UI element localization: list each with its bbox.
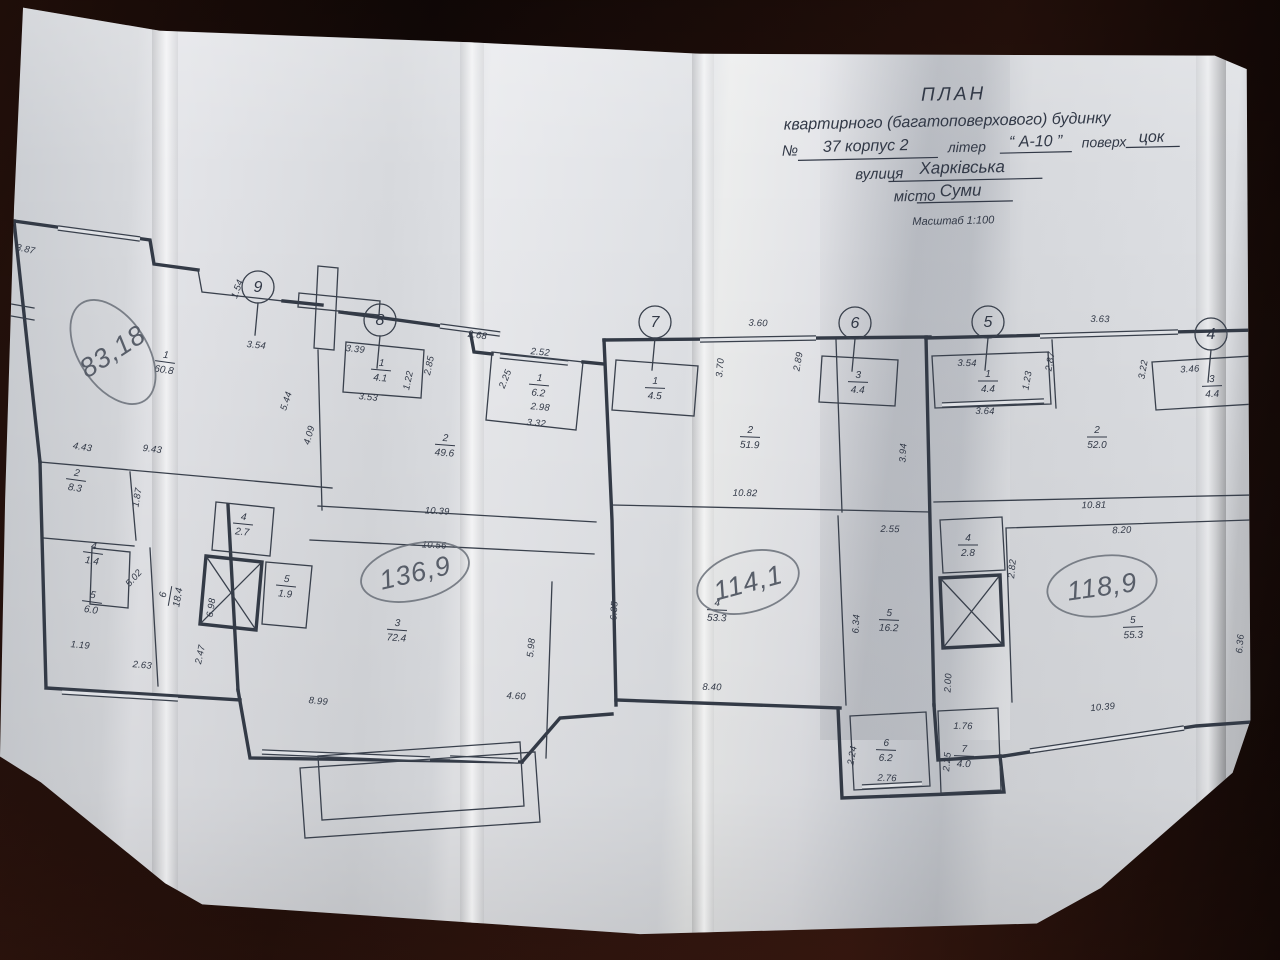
room-number: 5 [283,574,290,586]
room-number: 2 [72,468,80,480]
fraction-line [155,361,175,364]
room-label: 555.3 [1123,615,1144,642]
room-label: 28.3 [64,467,87,496]
pencil-area-value: 118,9 [1065,567,1139,607]
room-area: 72.4 [386,632,407,644]
dimension-label: 6.34 [851,614,863,634]
dimension-label: 4.09 [302,424,318,446]
room-label: 14.1 [370,357,392,385]
dimension-label: 2.76 [876,773,897,785]
axis-circles: 987654 [242,271,1227,382]
room-label: 516.2 [879,608,900,635]
dimension-label: 2.87 [1043,351,1057,373]
dimension-label: 10.81 [1081,500,1106,511]
dimension-label: 2.85 [422,354,437,377]
building-number: 37 корпус 2 [823,137,909,156]
room-number: 2 [441,433,449,444]
room-area: 1.4 [84,555,100,568]
dimension-label: 3.64 [975,406,994,417]
dimension-label: 5.98 [525,637,538,658]
handwritten-area-note: 118,9 [1043,549,1160,624]
room-number: 1 [652,376,658,387]
room-number: 3 [1209,374,1215,385]
fraction-line [740,437,760,438]
room-area: 18.4 [171,587,185,609]
dimension-label: 3.39 [345,343,366,356]
dimension-label: 8.40 [702,682,722,693]
dimension-label: 3.63 [1090,314,1110,325]
dimension-label: 2.68 [466,329,488,343]
axis-number: 4 [1207,326,1216,343]
room-label: 618.4 [156,584,185,608]
room-number: 6 [158,591,170,599]
room-area: 53.3 [707,613,727,625]
room-label: 34.4 [848,370,869,397]
dimension-label: 5.44 [278,390,294,412]
dimension-label: 3.60 [748,318,768,330]
room-number: 5 [89,590,96,602]
room-number: 1 [536,373,543,384]
dimension-label: 3.54 [957,358,976,369]
room-area: 49.6 [434,447,455,459]
dimension-label: 4.43 [72,441,93,455]
room-label: 251.9 [740,425,761,452]
room-number: 1 [985,369,991,380]
axis-tick [852,339,855,371]
no-label: № [782,142,799,159]
room-number: 1 [162,350,169,362]
axis-number: 8 [376,312,385,329]
dimension-label: 3.94 [898,443,910,463]
dimension-label: 1.22 [401,369,416,391]
fraction-line [82,601,102,604]
fraction-line [645,388,665,389]
dimension-label: 3.70 [714,357,727,378]
dimension-label: 3.54 [246,339,266,352]
dimension-label: 3.32 [526,417,547,430]
fraction-line [233,523,253,525]
room-number: 4 [965,533,971,544]
dimension-label: 3.46 [1180,363,1200,375]
room-label: 372.4 [386,617,408,644]
floor-plan-drawing: ПЛАН квартирного (багатоповерхового) буд… [0,0,1280,960]
room-area: 60.8 [153,364,174,378]
fraction-line [1202,386,1222,387]
room-label: 252.0 [1087,425,1107,451]
folded-paper-sheet: ПЛАН квартирного (багатоповерхового) буд… [0,0,1280,960]
fraction-line [387,629,407,630]
dimension-label: 6.98 [205,597,219,618]
axis-number: 6 [851,315,860,332]
room-number: 6 [883,738,889,749]
dimension-label: 6.35 [608,600,620,621]
room-label: 51.9 [275,573,298,601]
fraction-line [529,384,549,386]
dimension-label: 2.89 [791,351,805,373]
room-area: 52.0 [1087,440,1107,451]
fraction-line [1123,627,1143,628]
room-number: 5 [886,608,892,619]
dimension-label: 1.76 [953,721,973,732]
pencil-area-value: 114,1 [710,559,786,606]
fraction-line [876,750,896,751]
axis-number: 9 [254,279,263,296]
city-value: Суми [940,181,983,201]
dimension-label: 10.82 [733,488,758,499]
pencil-area-value: 136,9 [376,550,453,596]
room-area: 16.2 [879,623,899,635]
dimension-label: 2.98 [529,401,551,414]
room-number: 3 [855,370,861,381]
room-label: 14.4 [978,369,998,395]
room-label: 34.4 [1202,374,1223,401]
fraction-line [276,585,296,587]
dimension-label: 2.47 [193,643,208,666]
walls [0,221,1255,838]
dimension-label: 2.24 [845,745,859,767]
room-area: 8.3 [67,482,83,495]
axis-number: 5 [984,314,993,331]
room-number: 4 [90,541,97,553]
dimension-label: 2.63 [131,659,153,672]
dimension-label: 8.20 [1112,525,1132,537]
floor-value: цок [1139,129,1166,147]
dimension-label: 5.02 [124,567,145,589]
room-number: 2 [746,425,753,436]
room-label: 42.8 [958,533,978,559]
dimension-label: 9.43 [142,443,163,456]
plan-subtitle: квартирного (багатоповерхового) будинку [784,110,1112,134]
room-area: 51.9 [740,440,760,452]
dimension-label: 2.25 [497,368,515,391]
room-number: 5 [1130,615,1136,626]
room-area: 4.4 [981,384,995,395]
room-label: 56.0 [80,589,103,618]
fraction-line [83,552,103,555]
fraction-line [848,382,868,383]
dimension-label: 6.36 [1234,633,1247,654]
room-area: 55.3 [1123,630,1143,642]
room-area: 4.5 [648,391,663,402]
floor-label: поверх [1081,133,1127,150]
dimension-label: 2.82 [1006,558,1019,580]
room-number: 2 [1093,425,1100,436]
room-area: 1.9 [278,588,293,600]
photo-of-floor-plan: { "colors":{"ink":"#323947","paper":"#dc… [0,0,1280,960]
axis-tick [255,303,258,335]
fraction-line [879,620,899,621]
pencil-area-value: 83,18 [74,319,151,384]
room-label: 249.6 [434,432,456,459]
title-block: ПЛАН квартирного (багатоповерхового) буд… [780,79,1181,230]
room-label: 66.2 [876,738,897,765]
liter-label: літер [947,138,987,155]
room-area: 4.1 [373,372,388,384]
room-number: 4 [240,512,247,524]
dimension-label: 8.99 [308,695,329,708]
scale-note: Масштаб 1:100 [912,214,995,228]
room-area: 4.4 [1205,389,1220,400]
fraction-line [954,756,974,757]
dimension-label: 3.22 [1136,359,1150,380]
room-label: 16.2 [528,372,550,400]
dimension-label: 1.19 [70,639,91,652]
room-number: 3 [394,618,401,629]
fraction-line [435,444,455,445]
room-label: 42.7 [232,511,255,539]
fraction-line [371,369,391,371]
room-area: 6.0 [83,604,99,617]
dimension-label: 2.52 [529,346,551,359]
room-number: 1 [378,358,385,369]
room-area: 4.4 [851,385,866,396]
axis-number: 7 [651,314,661,331]
plan-title: ПЛАН [921,83,987,105]
street-label: вулиця [855,165,903,183]
room-number: 7 [961,744,967,755]
room-label: 14.5 [645,376,666,403]
room-area: 4.0 [957,759,972,770]
dimension-label: 10.39 [1090,701,1116,714]
handwritten-area-note: 136,9 [355,532,475,611]
handwritten-area-note: 83,18 [51,284,175,421]
room-area: 6.2 [879,753,894,764]
dimension-label: 4.60 [506,691,526,703]
street-value: Харківська [918,157,1005,178]
dimension-label: 2.25 [941,751,954,773]
dimension-label: 2.55 [879,524,900,535]
liter-value: “ А-10 ” [1009,133,1063,151]
room-label: 160.8 [153,349,177,378]
dimension-label: 10.39 [424,505,450,517]
dimension-label: 1.87 [130,487,144,508]
dimension-label: 1.23 [1020,370,1034,391]
room-area: 6.2 [531,387,546,399]
dimension-label: 2.00 [942,672,954,693]
dimension-label: 3.53 [358,391,379,404]
dimension-labels: 3.871.543.545.444.094.439.431.875.021.19… [15,242,1267,784]
room-area: 2.7 [234,526,250,539]
axis-tick [652,338,655,370]
fraction-line [66,479,86,482]
room-area: 2.8 [960,548,975,559]
room-label: 41.4 [81,540,104,569]
